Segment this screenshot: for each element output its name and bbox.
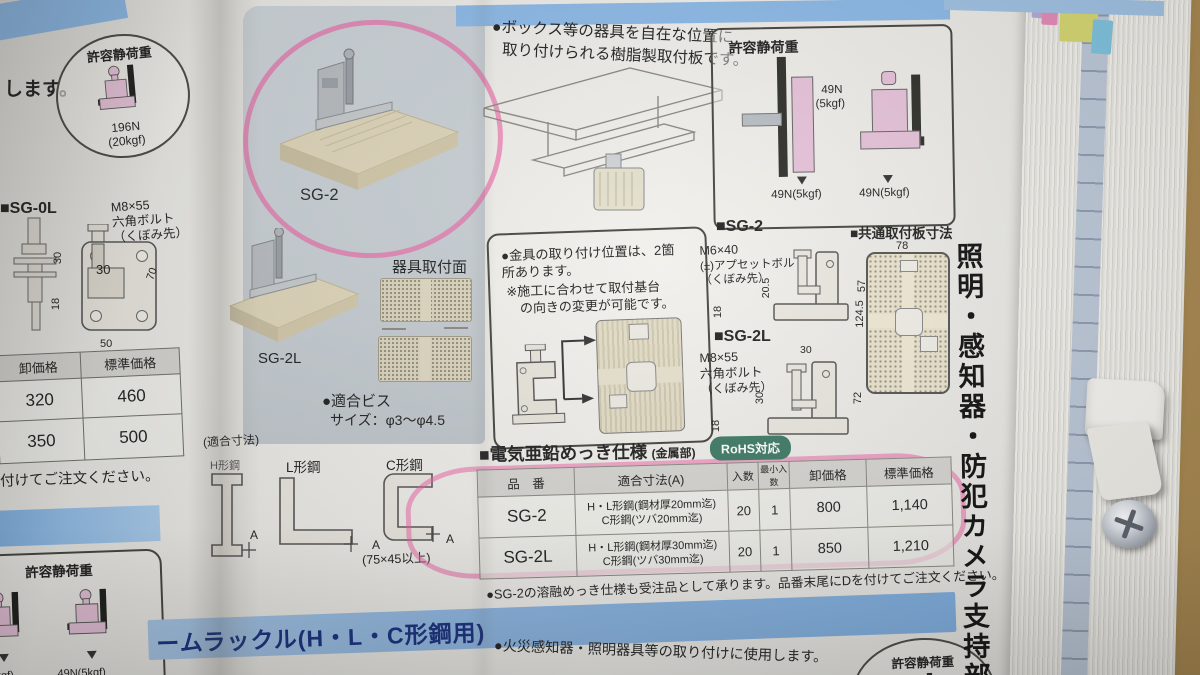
sg2l-dim-base: 18 xyxy=(710,420,722,432)
sg2-dim-base: 18 xyxy=(712,306,724,318)
arrow-load-value: 49N xyxy=(821,84,842,96)
clamp-base-pink xyxy=(860,130,920,149)
sg2l-product-photo xyxy=(224,228,364,353)
sg2l-dim-height: 72 xyxy=(852,392,864,404)
common-dim-height: 124.5 xyxy=(854,300,866,328)
spec-title: ■電気亜鉛めっき仕様 xyxy=(479,442,647,465)
dim-a-label: A xyxy=(250,528,258,542)
common-plate-diagram xyxy=(866,252,950,394)
down-load-label: 49N(5kgf) xyxy=(771,188,822,201)
clamp-icon xyxy=(60,584,126,646)
sg2l-dim-top: 30 xyxy=(800,344,812,356)
sg2l-section-heading: ■SG-2L xyxy=(714,328,771,346)
h-beam-section xyxy=(198,468,260,568)
product-table: 品 番 適合寸法(A) 入数 最小入数 卸価格 標準価格 SG-2 H・L形鋼(… xyxy=(477,456,955,579)
down-arrow-icon xyxy=(0,654,9,662)
mounting-note-box: ●金具の取り付け位置は、2箇 所あります。 ※施工に合わせて取付基台 の向きの変… xyxy=(486,226,713,450)
clamp-icon xyxy=(0,587,39,649)
screw-note-title: ●適合ビス xyxy=(322,390,391,411)
common-dim-width: 78 xyxy=(896,240,908,252)
left-load-circle: 許容静荷重 196N (20kgf) xyxy=(51,28,195,163)
plate-divider-mark xyxy=(444,327,468,329)
mounting-plate-diagram xyxy=(595,317,685,434)
sg2-product-photo xyxy=(260,48,470,193)
down-arrow-icon xyxy=(883,175,893,183)
index-tab-blue xyxy=(1091,19,1113,54)
common-plate-heading: ■共通取付板寸法 xyxy=(850,222,953,242)
catalog-photo: します。 許容静荷重 196N (20kgf) ■SG-0L M8×55 xyxy=(0,0,1200,675)
left-load-box-title: 許容静荷重 xyxy=(0,557,160,584)
sg2-dim-inner: 20.5 xyxy=(760,278,772,298)
arrow-load-unit: (5kgf) xyxy=(815,98,845,111)
sg2l-side-drawing xyxy=(762,354,854,442)
binder-screw xyxy=(1102,500,1156,548)
bolt-icon xyxy=(742,113,782,127)
l-beam-section xyxy=(268,474,360,558)
mount-face-plate-top xyxy=(380,278,472,322)
sg2-label: SG-2 xyxy=(300,186,339,205)
spec-subtitle: (金属部) xyxy=(651,446,695,461)
right-load-box: 許容静荷重 49N (5kgf) 49N(5kgf) 49N(5kgf) xyxy=(710,24,955,230)
rohs-badge: RoHS対応 xyxy=(710,435,791,460)
mounted-plate-pink xyxy=(791,76,815,172)
c-beam-section xyxy=(374,470,444,554)
left-load-box: 許容静荷重 49N(5kgf) 49N(5kgf) xyxy=(0,548,167,675)
sg0l-dim-lower: 18 xyxy=(50,298,62,310)
right-load-box-title: 許容静荷重 xyxy=(728,37,798,58)
sg0l-side-diagram xyxy=(8,214,68,339)
clamp-icon xyxy=(89,59,156,120)
plate-divider-mark xyxy=(382,328,406,330)
dim-a-label: A xyxy=(446,532,454,546)
fit-dim-label: (適合寸法) xyxy=(203,431,260,451)
clamp-icon xyxy=(895,669,949,675)
screw-note-size: サイズ：φ3〜φ4.5 xyxy=(330,410,445,430)
c-beam-size-note: (75×45以上) xyxy=(362,547,431,568)
left-price-table: 卸価格 標準価格 320 460 350 500 xyxy=(0,347,184,465)
sg2l-label: SG-2L xyxy=(258,350,301,367)
l-beam-label: L形鋼 xyxy=(286,456,321,476)
sg0l-dim-inner: 30 xyxy=(96,262,110,277)
mount-face-label: 器具取付面 xyxy=(392,256,467,277)
sg2-section-heading: ■SG-2 xyxy=(716,218,763,236)
mount-face-plate-bottom xyxy=(378,336,472,382)
sg2l-dim-inner: 30 xyxy=(754,392,766,404)
bolt-icon xyxy=(881,71,896,85)
price-col-wholesale: 卸価格 xyxy=(0,352,81,382)
down-arrow-icon xyxy=(87,651,97,659)
sg0l-dim-upper: 30 xyxy=(52,252,64,264)
sg0l-dim-base: 50 xyxy=(100,338,112,350)
left-load-label: 49N(5kgf) xyxy=(0,670,14,675)
sidebar-vertical-title: 照明・感知器・防犯カメラ支持部材 xyxy=(948,242,994,673)
left-blue-bar xyxy=(0,505,161,547)
sg2-side-drawing xyxy=(768,246,856,328)
left-bolt-callout: M8×55 六角ボルト （くぼみ先） xyxy=(111,195,189,245)
isometric-beam-diagram xyxy=(478,58,724,234)
left-load-label: 49N(5kgf) xyxy=(57,666,106,675)
down-load-label: 49N(5kgf) xyxy=(859,187,910,200)
down-arrow-icon xyxy=(797,176,807,184)
